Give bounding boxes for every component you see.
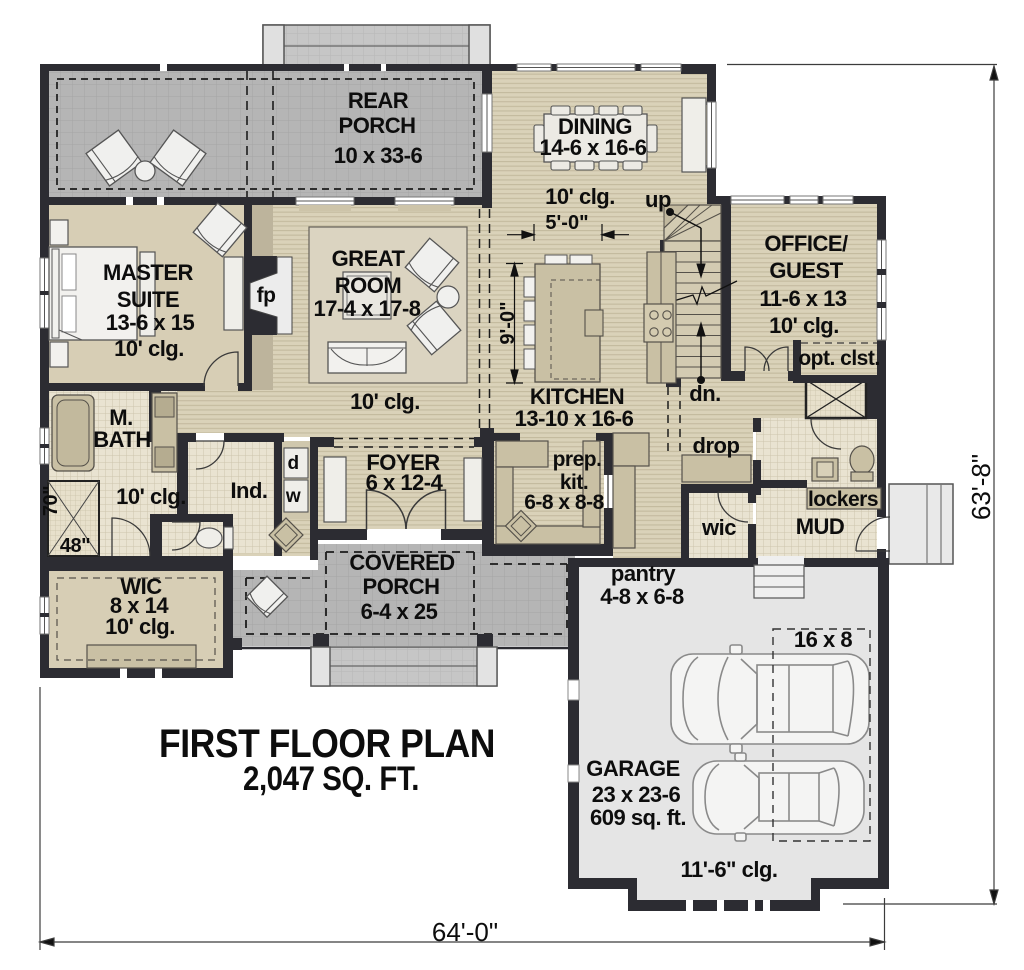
svg-text:REAR: REAR (348, 88, 409, 113)
svg-text:5'-0": 5'-0" (545, 212, 588, 234)
svg-text:13-10 x 16-6: 13-10 x 16-6 (515, 406, 634, 431)
svg-text:GREAT: GREAT (332, 246, 406, 271)
svg-text:dn.: dn. (689, 381, 721, 406)
svg-text:GARAGE: GARAGE (586, 756, 680, 781)
svg-text:6-8 x 8-8: 6-8 x 8-8 (524, 491, 604, 514)
svg-text:w: w (285, 486, 301, 507)
svg-text:GUEST: GUEST (769, 258, 843, 283)
svg-text:opt. clst.: opt. clst. (798, 347, 879, 370)
svg-text:10' clg.: 10' clg. (350, 389, 420, 414)
svg-text:11'-6" clg.: 11'-6" clg. (681, 857, 778, 882)
svg-text:MUD: MUD (796, 514, 845, 539)
svg-text:48": 48" (60, 535, 90, 557)
svg-text:14-6 x 16-6: 14-6 x 16-6 (539, 135, 646, 160)
svg-text:10' clg.: 10' clg. (769, 313, 839, 338)
svg-text:9'-0": 9'-0" (497, 301, 519, 344)
svg-text:63'-8": 63'-8" (966, 454, 996, 520)
svg-text:70": 70" (40, 486, 62, 516)
svg-text:up: up (645, 187, 671, 212)
svg-text:ROOM: ROOM (335, 273, 401, 298)
svg-text:11-6 x 13: 11-6 x 13 (759, 286, 847, 311)
svg-text:pantry: pantry (611, 561, 677, 586)
svg-text:MASTER: MASTER (103, 260, 194, 285)
svg-text:10' clg.: 10' clg. (105, 614, 175, 639)
svg-text:23 x 23-6: 23 x 23-6 (592, 782, 681, 807)
svg-text:64'-0": 64'-0" (432, 917, 498, 947)
svg-text:13-6 x 15: 13-6 x 15 (106, 310, 195, 335)
svg-text:PORCH: PORCH (363, 574, 440, 599)
svg-text:drop: drop (693, 433, 740, 458)
svg-text:prep.: prep. (553, 448, 602, 471)
svg-text:COVERED: COVERED (349, 550, 454, 575)
svg-text:Ind.: Ind. (230, 478, 267, 503)
svg-text:17-4 x 17-8: 17-4 x 17-8 (313, 296, 420, 321)
svg-text:4-8 x 6-8: 4-8 x 6-8 (600, 584, 684, 609)
svg-text:SUITE: SUITE (117, 287, 179, 312)
svg-text:10 x 33-6: 10 x 33-6 (334, 143, 423, 168)
svg-text:wic: wic (701, 515, 736, 540)
svg-text:lockers: lockers (808, 488, 878, 511)
svg-text:BATH: BATH (93, 427, 150, 452)
svg-text:OFFICE/: OFFICE/ (764, 231, 848, 256)
svg-text:10' clg.: 10' clg. (114, 336, 184, 361)
svg-text:fp: fp (257, 284, 276, 307)
svg-text:6-4 x 25: 6-4 x 25 (361, 599, 438, 624)
svg-text:6 x 12-4: 6 x 12-4 (366, 470, 444, 495)
svg-text:609 sq. ft.: 609 sq. ft. (590, 805, 686, 830)
svg-text:10' clg.: 10' clg. (545, 184, 615, 209)
svg-text:10' clg.: 10' clg. (116, 484, 186, 509)
svg-text:PORCH: PORCH (339, 113, 416, 138)
svg-text:2,047 SQ. FT.: 2,047 SQ. FT. (243, 760, 419, 798)
svg-text:d: d (287, 453, 298, 474)
svg-text:16 x 8: 16 x 8 (794, 627, 852, 652)
